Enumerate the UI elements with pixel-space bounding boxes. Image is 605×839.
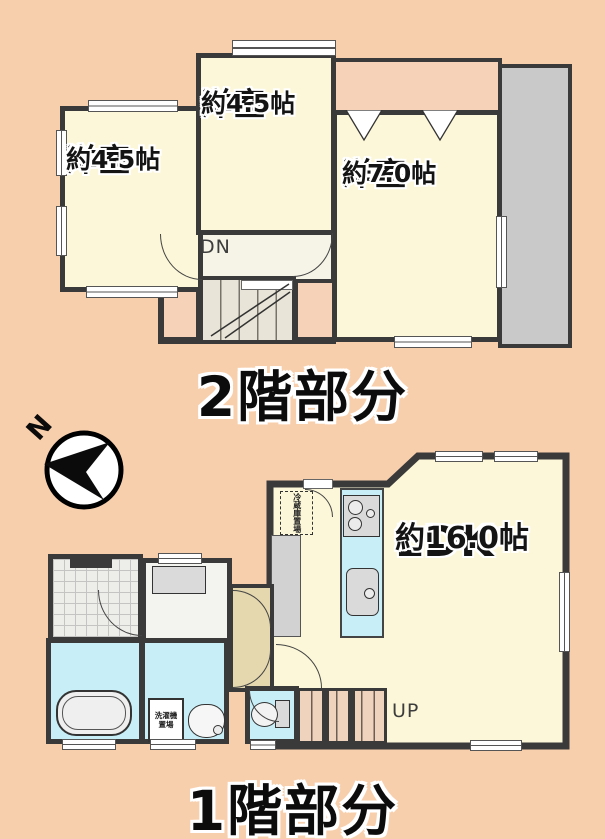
compass-north-icon: N — [16, 414, 140, 520]
compass-north-label: N — [21, 414, 59, 447]
f2-window-left-wall-2 — [56, 206, 67, 256]
f1-entrance-step — [70, 556, 112, 568]
f2-stairs-direction-lines — [203, 280, 292, 340]
f2-closet-strip — [332, 58, 502, 114]
f1-window-ldk-top-1 — [435, 451, 483, 462]
f1-window-ldk-top-2 — [494, 451, 538, 462]
floorplan-image: 洋室 約4.5帖 洋室 約4.5帖 洋室 約7.0帖 DN 2階部分 N 冷蔵庫… — [0, 0, 605, 839]
f1-window-laundry-bottom — [150, 739, 196, 750]
f1-vanity-unit — [152, 566, 206, 594]
f2-window-right-wall — [496, 216, 507, 288]
f2-stairs-down — [199, 276, 296, 344]
f1-window-vanity-top — [158, 553, 202, 564]
f1-window-ldk-right — [559, 572, 570, 652]
room-size: 約16.0帖 — [395, 522, 529, 556]
f1-stairs-tread-dark — [322, 691, 329, 741]
f1-kitchen-service-door-gap — [303, 479, 333, 489]
f1-stairs-label: UP — [392, 700, 419, 722]
f1-window-bath-bottom — [62, 739, 116, 750]
f1-wash-basin — [188, 704, 225, 738]
stove-burner — [348, 500, 363, 515]
basin-faucet — [213, 725, 223, 735]
f1-bathtub — [56, 690, 132, 736]
f1-stairs-tread-dark — [348, 691, 355, 741]
f1-caption: 1階部分 — [0, 766, 595, 839]
f1-cabinet — [271, 535, 301, 637]
f2-stairs-label: DN — [200, 236, 231, 258]
f2-alcove-right — [294, 279, 336, 341]
bathtub-inner — [62, 696, 126, 730]
f2-gray-area — [498, 64, 572, 348]
sink-faucet — [364, 588, 375, 599]
f1-stove — [343, 495, 380, 537]
f1-stairs-up — [297, 688, 387, 744]
room-size: 約4.5帖 — [66, 146, 160, 174]
f2-window-left-room-top — [88, 100, 178, 112]
f2-room-west-top — [196, 53, 336, 235]
washer-label-line1: 洗濯機 — [150, 711, 182, 720]
f2-closet-pleat-marks — [332, 110, 502, 146]
room-size: 約4.5帖 — [201, 90, 295, 118]
washer-space-label: 洗濯機 置場 — [150, 711, 182, 730]
washer-label-line2: 置場 — [150, 720, 182, 729]
f2-window-left-room-bottom — [86, 286, 178, 298]
f1-window-ldk-bottom — [470, 740, 522, 751]
f1-sink — [346, 568, 379, 616]
stove-burner — [348, 517, 362, 531]
f2-window-top-mid — [232, 40, 336, 56]
fridge-space-label: 冷蔵庫置場 — [291, 493, 301, 533]
f1-window-toilet-bottom — [250, 740, 276, 750]
stove-burner — [366, 509, 375, 518]
f2-window-right-room-bottom — [394, 336, 472, 348]
room-size: 約7.0帖 — [342, 160, 436, 188]
f1-washer-space: 洗濯機 置場 — [148, 698, 184, 742]
